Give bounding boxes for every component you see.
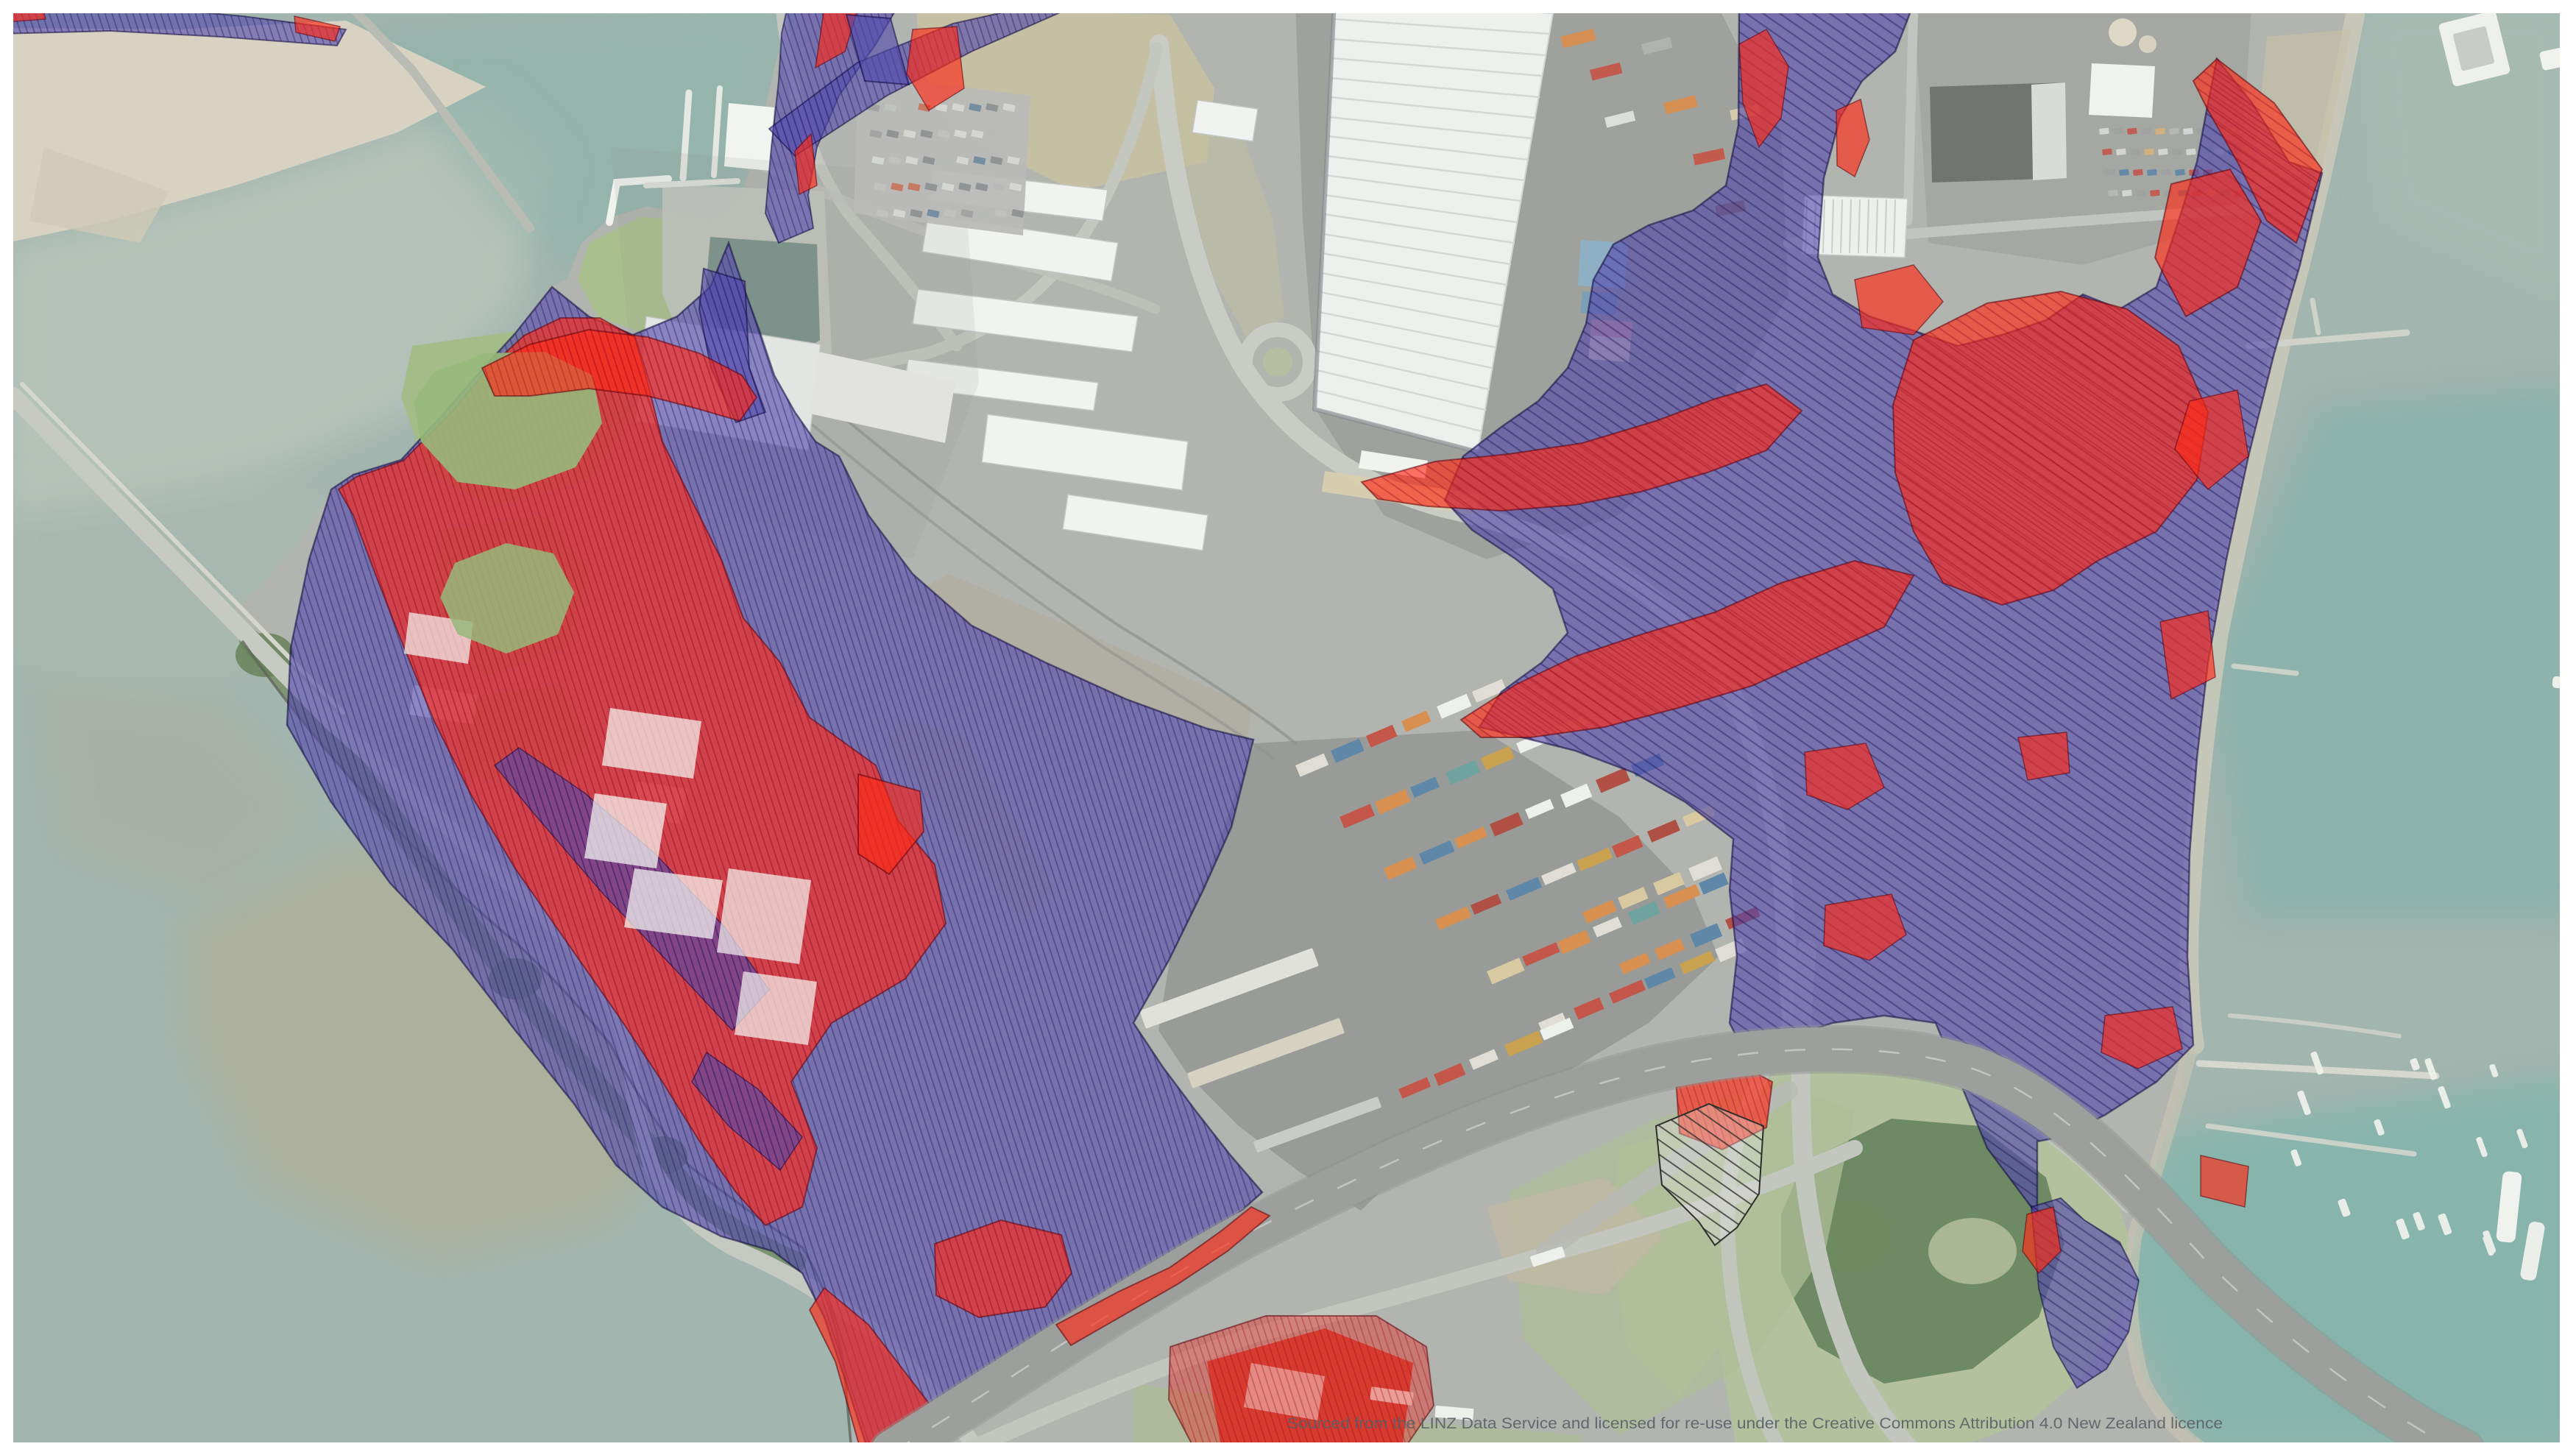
svg-text:Sourced from the LINZ Data Ser: Sourced from the LINZ Data Service and l…	[1287, 1414, 2223, 1432]
